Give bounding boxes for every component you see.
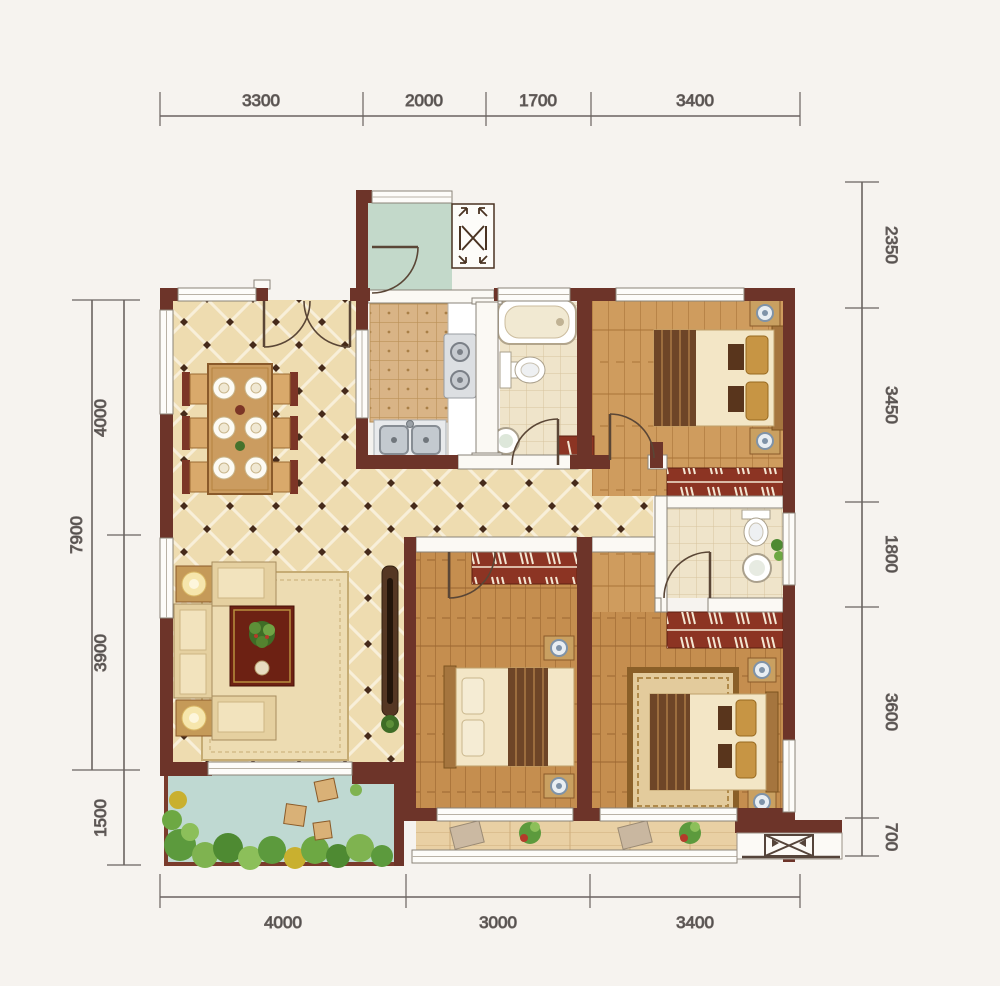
dim-label: 1700: [519, 91, 557, 110]
dim-label: 1500: [91, 799, 110, 837]
dim-label: 3300: [242, 91, 280, 110]
dim-label: 2000: [405, 91, 443, 110]
toilet-icon: [742, 510, 770, 546]
kitchen-mat: [370, 304, 448, 422]
plant-icon: [771, 539, 783, 551]
sofa-set: [174, 562, 348, 760]
dim-label: 2350: [882, 226, 901, 264]
dim-label: 4000: [91, 399, 110, 437]
tv-cabinet: [381, 566, 399, 733]
bathroom2-floor: [667, 508, 783, 598]
dimension-left-inner: 4000 3900 1500: [91, 300, 141, 865]
wash-basin-icon: [743, 554, 771, 582]
dimension-right: 2350 3450 1800 3600 700: [845, 182, 901, 856]
dining-set: [182, 364, 298, 494]
wardrobe: [667, 468, 783, 496]
dim-label: 3450: [882, 386, 901, 424]
dim-label: 3600: [882, 693, 901, 731]
wardrobe: [667, 612, 783, 648]
bedroom3-furniture: [630, 658, 778, 814]
utility-balcony-floor: [368, 202, 452, 300]
dim-label: 7900: [67, 516, 86, 554]
dim-label: 3000: [479, 913, 517, 932]
floor-plan: 3300 2000 1700 3400 4000 3000 3400 2350 …: [0, 0, 1000, 986]
dim-label: 1800: [882, 535, 901, 573]
dim-label: 4000: [264, 913, 302, 932]
double-bed: [650, 692, 778, 792]
double-bed: [444, 666, 574, 768]
dim-label: 3400: [676, 91, 714, 110]
double-bed: [654, 326, 784, 430]
dimension-bottom: 4000 3000 3400: [160, 874, 800, 932]
floor-plan-page: 3300 2000 1700 3400 4000 3000 3400 2350 …: [0, 0, 1000, 986]
dimension-top: 3300 2000 1700 3400: [160, 91, 800, 126]
wardrobe: [472, 550, 577, 584]
equipment-platform-top: [452, 204, 494, 268]
dim-label: 700: [882, 823, 901, 851]
dim-label: 3400: [676, 913, 714, 932]
dim-label: 3900: [91, 634, 110, 672]
equipment-platform-bottom: [737, 833, 842, 859]
